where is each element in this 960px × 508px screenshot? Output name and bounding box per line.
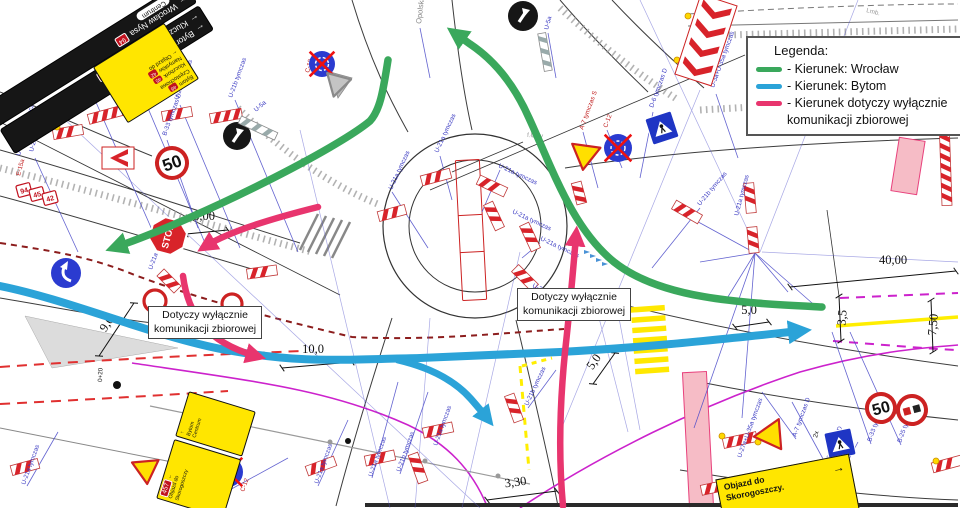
sign-label: U-5a [543, 15, 553, 30]
traffic-plan-screenshot: 944542U-21b tymczasU-21b tymczasU-21b ty… [0, 0, 960, 508]
sign-label: Lmb. [866, 7, 882, 17]
dimension: 5,0 [584, 351, 619, 384]
legend-label-line2: komunikacji zbiorowej [787, 113, 958, 127]
sign-b50: 50 [864, 391, 898, 425]
dimension: 40,00 [788, 253, 959, 290]
legend-title: Legenda: [774, 43, 958, 58]
sign-label: U-21a tymczas [497, 162, 538, 186]
sign-c9b [51, 258, 81, 288]
barrier-board [747, 227, 759, 254]
dimension: 3,30 [485, 474, 560, 503]
wroclaw-route-swatch [756, 67, 782, 72]
temporary-crosswalk [631, 305, 670, 375]
arrow-left-icon: ← [177, 0, 191, 8]
note-line: Dotyczy wyłącznie [162, 309, 248, 321]
warning-lamp-icon [933, 458, 939, 464]
svg-text:10,0: 10,0 [302, 342, 324, 356]
svg-text:3,30: 3,30 [504, 474, 527, 491]
svg-text:3,5: 3,5 [834, 309, 849, 326]
barrier-board [484, 201, 505, 231]
barrier-board [209, 108, 242, 123]
warning-lamp-icon [719, 433, 725, 439]
svg-text:7,50: 7,50 [925, 313, 941, 336]
sign-label: 0+20 [97, 367, 105, 382]
sign-label: U-27a+U-35a tymczas [736, 397, 764, 458]
route-bus-north [560, 236, 576, 506]
legend-label: - Kierunek dotyczy wyłącznie [787, 96, 947, 110]
sign-label: U-21b tymczas [696, 171, 728, 208]
sign-label: Opolska [414, 0, 426, 24]
arrow-right-icon: → [831, 459, 846, 477]
sign-b50: 50 [153, 144, 191, 182]
sign-pylon [538, 33, 552, 72]
note-line: komunikacji zbiorowej [523, 305, 625, 317]
barrier-board [408, 452, 428, 484]
sign-label: A-7 tymczas S [578, 90, 598, 131]
warning-lamp-icon [685, 13, 691, 19]
sign-label: U-5a [253, 99, 268, 113]
barrier-board [157, 269, 181, 293]
barrier-board [505, 393, 524, 423]
detour-text: Centrum [192, 418, 204, 439]
sign-b25 [895, 393, 929, 427]
legend-item-wroclaw: - Kierunek: Wrocław [756, 62, 958, 76]
bus-route-swatch [756, 101, 782, 106]
dimension: 7,50 [925, 298, 941, 354]
svg-text:40,00: 40,00 [879, 253, 907, 267]
legend-label: - Kierunek: Wrocław [787, 62, 899, 76]
bytom-route-swatch [756, 84, 782, 89]
route-bus-west [206, 207, 318, 246]
sign-d6 [645, 111, 679, 145]
legend: Legenda: - Kierunek: Wrocław - Kierunek:… [746, 36, 960, 136]
sign-c9 [508, 1, 538, 31]
note-box-bus-only-west: Dotyczy wyłącznie komunikacji zbiorowej [148, 306, 262, 339]
sign-label: A-7 tymczas D [791, 396, 812, 437]
legend-label: - Kierunek: Bytom [787, 79, 886, 93]
barrier-board [571, 181, 586, 205]
sign-label: 2x [812, 429, 821, 438]
sign-a7 [569, 144, 601, 172]
legend-item-bus: - Kierunek dotyczy wyłącznie [756, 96, 958, 110]
sign-label: U-21a tymczas [433, 113, 457, 154]
legend-item-bytom: - Kierunek: Bytom [756, 79, 958, 93]
note-box-bus-only-center: Dotyczy wyłącznie komunikacji zbiorowej [517, 288, 631, 321]
barrier-board [377, 205, 407, 222]
barrier-board [87, 106, 122, 124]
sign-label: U-21b tymczas [227, 57, 248, 99]
sign-label: U-21a tymczas [387, 150, 411, 191]
note-line: komunikacji zbiorowej [154, 323, 256, 335]
sign-chev1 [102, 147, 134, 169]
sign-label: D-6 tymczas D [648, 67, 669, 109]
route-bytom-branch [398, 360, 487, 418]
barrier-board [246, 265, 277, 279]
note-line: Dotyczy wyłącznie [531, 291, 617, 303]
dimension: 3,5 [834, 294, 849, 343]
sign-label: E-15a [15, 158, 26, 177]
sign-a7 [754, 419, 794, 458]
sign-c12x [604, 134, 632, 162]
sign-a7 [132, 460, 160, 485]
